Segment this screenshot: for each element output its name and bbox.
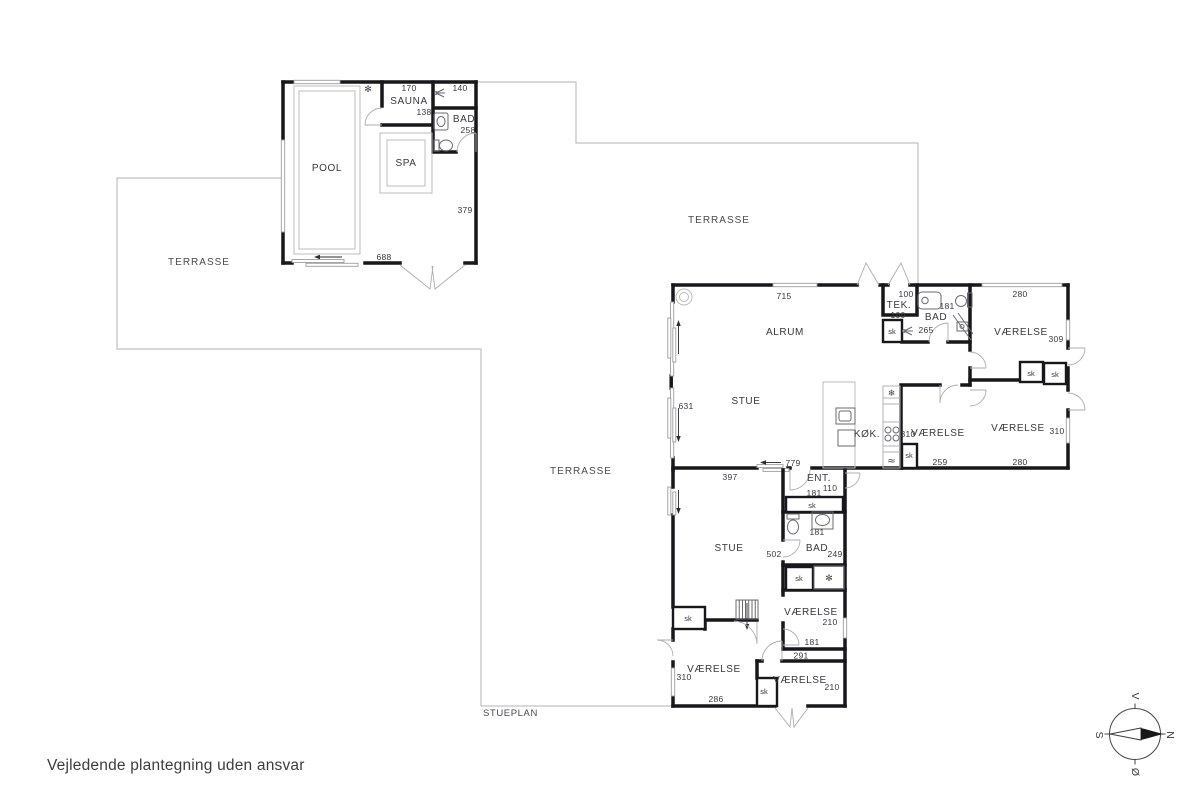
dim-sauna-width: 170 [401,83,416,93]
pool-house-labels: 170 SAUNA 138 140 BAD 258 POOL SPA 379 6… [312,83,476,262]
compass-east: Ø [1129,768,1141,776]
dim: 181 [809,527,824,537]
room-label-stue-south: STUE [714,543,743,554]
dim: 181 [804,637,819,647]
room-label-pool: POOL [312,163,342,174]
dim-east: 379 [457,205,472,215]
room-label-vaerelse-se: VÆRELSE [991,423,1045,434]
shower-icon: ✻ [825,574,833,584]
room-label-bad-north: BAD [925,312,947,323]
dim: 181 [806,488,821,498]
cooktop-icon [838,430,855,446]
plan-title: STUEPLAN [483,708,538,719]
dim: 181 [939,301,954,311]
dim: 309 [1048,334,1063,344]
appliance-column: ❄ ≈ [883,386,900,468]
dim: 249 [827,549,842,559]
closet-label: sk [888,327,896,336]
compass-west: V [1129,692,1141,699]
window [1066,418,1069,443]
dim: 397 [722,472,737,482]
room-label-stue: STUE [731,396,760,407]
room-label-vaerelse-ne: VÆRELSE [994,327,1048,338]
dim: 310 [1049,426,1064,436]
dim: 715 [776,291,791,301]
dishwasher-icon: ≈ [887,456,895,467]
dim: 502 [766,549,781,559]
dim: 100 [890,310,905,320]
dim: 631 [678,401,693,411]
dim: 259 [932,457,947,467]
dim: 110 [823,483,837,493]
dim: 291 [793,651,808,661]
sliding-door [668,487,671,515]
room-label-vaerelse-e: VÆRELSE [911,428,965,439]
pool-house-sliding-door [292,255,358,266]
compass-needle-tail [1110,728,1141,740]
sliding-door [673,492,676,515]
compass-rose: V S N Ø [1093,692,1176,776]
pool-house-walls [281,80,476,263]
kitchen-island [823,382,855,468]
main-house-labels: 715 ALRUM 100 TEK. 100 181 BAD 265 sk 28… [676,289,1064,704]
freezer-icon: ❄ [888,389,896,399]
window [1066,320,1069,340]
room-label-bad: BAD [453,114,475,125]
room-label-bad-south: BAD [806,543,828,554]
closet-label: sk [905,451,913,460]
window [982,283,1062,286]
dim: 280 [1012,289,1027,299]
dim-south: 688 [376,252,391,262]
sink-icon [434,113,448,130]
main-house-walls [671,283,1070,470]
shower-icon: ✻ [364,85,372,95]
disclaimer-text: Vejledende plantegning uden ansvar [47,757,305,775]
terrace-label-west: TERRASSE [168,257,230,268]
room-label-sauna: SAUNA [390,96,427,107]
dim: 210 [822,617,837,627]
wood-stove-icon [676,289,692,305]
closet-label: sk [1027,369,1035,378]
terrace-label-middle: TERRASSE [550,466,612,477]
room-label-koekken: KØK. [854,429,880,440]
toilet-icon [956,296,967,307]
window [843,618,846,638]
closet-label: sk [1051,370,1059,379]
dim: 100 [898,289,913,299]
dim: 286 [708,694,723,704]
closet-label: sk [808,501,816,510]
toilet-icon [787,514,799,519]
dim-sauna-depth: 138 [416,107,431,117]
stove-icon [885,427,899,441]
pool-house-fixtures: ✻ [364,85,452,151]
room-label-vaerelse-s2: VÆRELSE [773,675,827,686]
dim-bath-depth: 258 [460,125,475,135]
dim: 210 [824,682,839,692]
closet-label: sk [684,614,692,623]
dim-bath-width: 140 [452,83,467,93]
window [773,283,817,286]
room-label-vaerelse-sw: VÆRELSE [687,664,741,675]
window [281,140,284,232]
room-label-spa: SPA [395,158,416,169]
closet-label: sk [795,574,803,583]
window [671,668,674,696]
room-label-alrum: ALRUM [766,327,804,338]
sliding-doors-west [668,318,789,471]
terrace-label-north: TERRASSE [688,215,750,226]
floor-plan-page: ✻ 170 SAUNA 138 140 BAD 258 POOL SPA 379… [0,0,1200,800]
dim: 280 [1012,457,1027,467]
dim: 265 [918,325,933,335]
closet-label: sk [760,687,768,696]
dim: 779 [785,458,800,468]
compass-south: S [1093,731,1105,738]
compass-north: N [1164,731,1176,739]
window [294,80,340,83]
